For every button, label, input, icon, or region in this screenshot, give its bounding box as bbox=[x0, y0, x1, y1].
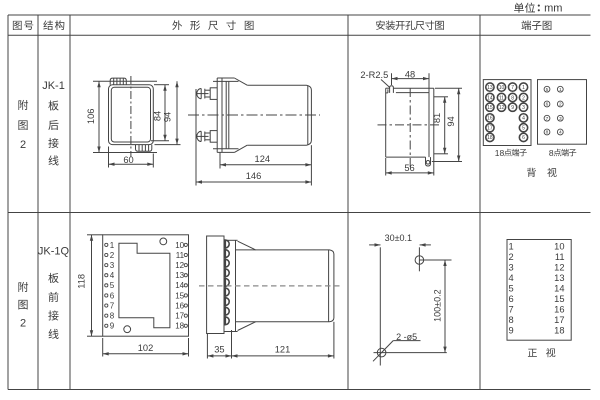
svg-text:2: 2 bbox=[20, 318, 26, 330]
svg-text:18: 18 bbox=[487, 135, 493, 141]
svg-text:4: 4 bbox=[110, 271, 115, 280]
svg-text:8: 8 bbox=[511, 95, 514, 101]
svg-text:2 -ø5: 2 -ø5 bbox=[396, 332, 417, 342]
svg-text:4: 4 bbox=[522, 116, 525, 122]
svg-text:2: 2 bbox=[110, 251, 115, 260]
svg-text:2: 2 bbox=[522, 95, 525, 101]
svg-text:35: 35 bbox=[214, 344, 224, 354]
svg-text:5: 5 bbox=[509, 283, 514, 293]
svg-text:15: 15 bbox=[175, 291, 184, 300]
svg-text:9: 9 bbox=[509, 325, 514, 335]
svg-text:JK-1: JK-1 bbox=[42, 80, 65, 92]
svg-text:7: 7 bbox=[509, 304, 514, 314]
svg-text:7: 7 bbox=[546, 116, 549, 122]
svg-text:124: 124 bbox=[255, 154, 271, 164]
svg-text:6: 6 bbox=[509, 294, 514, 304]
svg-text:17: 17 bbox=[175, 312, 184, 321]
svg-text:12: 12 bbox=[554, 262, 564, 272]
svg-text:5: 5 bbox=[110, 281, 115, 290]
svg-text:2: 2 bbox=[509, 252, 514, 262]
svg-text:102: 102 bbox=[138, 343, 154, 353]
svg-text:94: 94 bbox=[163, 112, 173, 122]
svg-text:1: 1 bbox=[522, 85, 525, 91]
svg-text:84: 84 bbox=[152, 111, 162, 121]
svg-text:4: 4 bbox=[559, 130, 562, 136]
svg-text:4: 4 bbox=[509, 273, 514, 283]
svg-text:60: 60 bbox=[123, 155, 133, 165]
svg-text:12: 12 bbox=[499, 105, 505, 111]
svg-text:5: 5 bbox=[522, 126, 525, 132]
svg-text:3: 3 bbox=[110, 261, 115, 270]
svg-text:8: 8 bbox=[509, 315, 514, 325]
svg-text:11: 11 bbox=[555, 252, 565, 262]
svg-text:48: 48 bbox=[405, 69, 415, 79]
svg-text:mm: mm bbox=[544, 3, 562, 15]
svg-text:15: 15 bbox=[487, 105, 493, 111]
svg-text:14: 14 bbox=[175, 281, 184, 290]
svg-text:94: 94 bbox=[446, 116, 456, 126]
svg-text:9: 9 bbox=[511, 105, 514, 111]
svg-text:5: 5 bbox=[546, 87, 549, 93]
svg-text:15: 15 bbox=[554, 294, 564, 304]
svg-text:8: 8 bbox=[546, 130, 549, 136]
svg-text:100±0.2: 100±0.2 bbox=[432, 289, 442, 321]
svg-text:106: 106 bbox=[86, 109, 96, 125]
svg-text:7: 7 bbox=[110, 302, 115, 311]
svg-text:56: 56 bbox=[404, 163, 414, 173]
svg-text:14: 14 bbox=[554, 283, 564, 293]
svg-text:13: 13 bbox=[487, 85, 493, 91]
svg-text:8: 8 bbox=[110, 312, 115, 321]
svg-text:30±0.1: 30±0.1 bbox=[385, 233, 412, 243]
svg-text:10: 10 bbox=[175, 241, 184, 250]
svg-text:7: 7 bbox=[511, 85, 514, 91]
svg-text:3: 3 bbox=[522, 105, 525, 111]
svg-text:10: 10 bbox=[554, 241, 564, 251]
svg-text:18: 18 bbox=[175, 322, 184, 331]
svg-text:18: 18 bbox=[554, 325, 564, 335]
svg-text:9: 9 bbox=[110, 322, 115, 331]
svg-text:1: 1 bbox=[110, 241, 115, 250]
svg-text:17: 17 bbox=[554, 315, 564, 325]
svg-text:18: 18 bbox=[495, 148, 505, 158]
svg-text:16: 16 bbox=[175, 302, 184, 311]
svg-text:14: 14 bbox=[487, 95, 493, 101]
svg-text:118: 118 bbox=[76, 274, 86, 289]
svg-text:3: 3 bbox=[509, 262, 514, 272]
svg-text:6: 6 bbox=[110, 291, 115, 300]
svg-text:16: 16 bbox=[554, 304, 564, 314]
svg-text:121: 121 bbox=[275, 344, 291, 354]
svg-text:146: 146 bbox=[246, 171, 262, 181]
svg-text:JK-1Q: JK-1Q bbox=[38, 246, 70, 258]
svg-text:8: 8 bbox=[549, 148, 554, 158]
svg-text:81: 81 bbox=[432, 113, 442, 123]
svg-text:13: 13 bbox=[175, 271, 184, 280]
svg-text:2: 2 bbox=[559, 102, 562, 108]
svg-text:10: 10 bbox=[499, 85, 505, 91]
svg-text:12: 12 bbox=[175, 261, 184, 270]
svg-text:6: 6 bbox=[522, 135, 525, 141]
svg-text:13: 13 bbox=[554, 273, 564, 283]
svg-text:3: 3 bbox=[559, 116, 562, 122]
svg-text:11: 11 bbox=[499, 95, 504, 101]
svg-text:11: 11 bbox=[176, 251, 185, 260]
svg-text:17: 17 bbox=[487, 126, 493, 132]
svg-text:2: 2 bbox=[20, 139, 26, 151]
svg-text:1: 1 bbox=[509, 241, 514, 251]
svg-text:16: 16 bbox=[487, 116, 493, 122]
svg-text:6: 6 bbox=[546, 102, 549, 108]
svg-text:2-R2.5: 2-R2.5 bbox=[360, 70, 388, 80]
svg-text:1: 1 bbox=[559, 87, 562, 93]
